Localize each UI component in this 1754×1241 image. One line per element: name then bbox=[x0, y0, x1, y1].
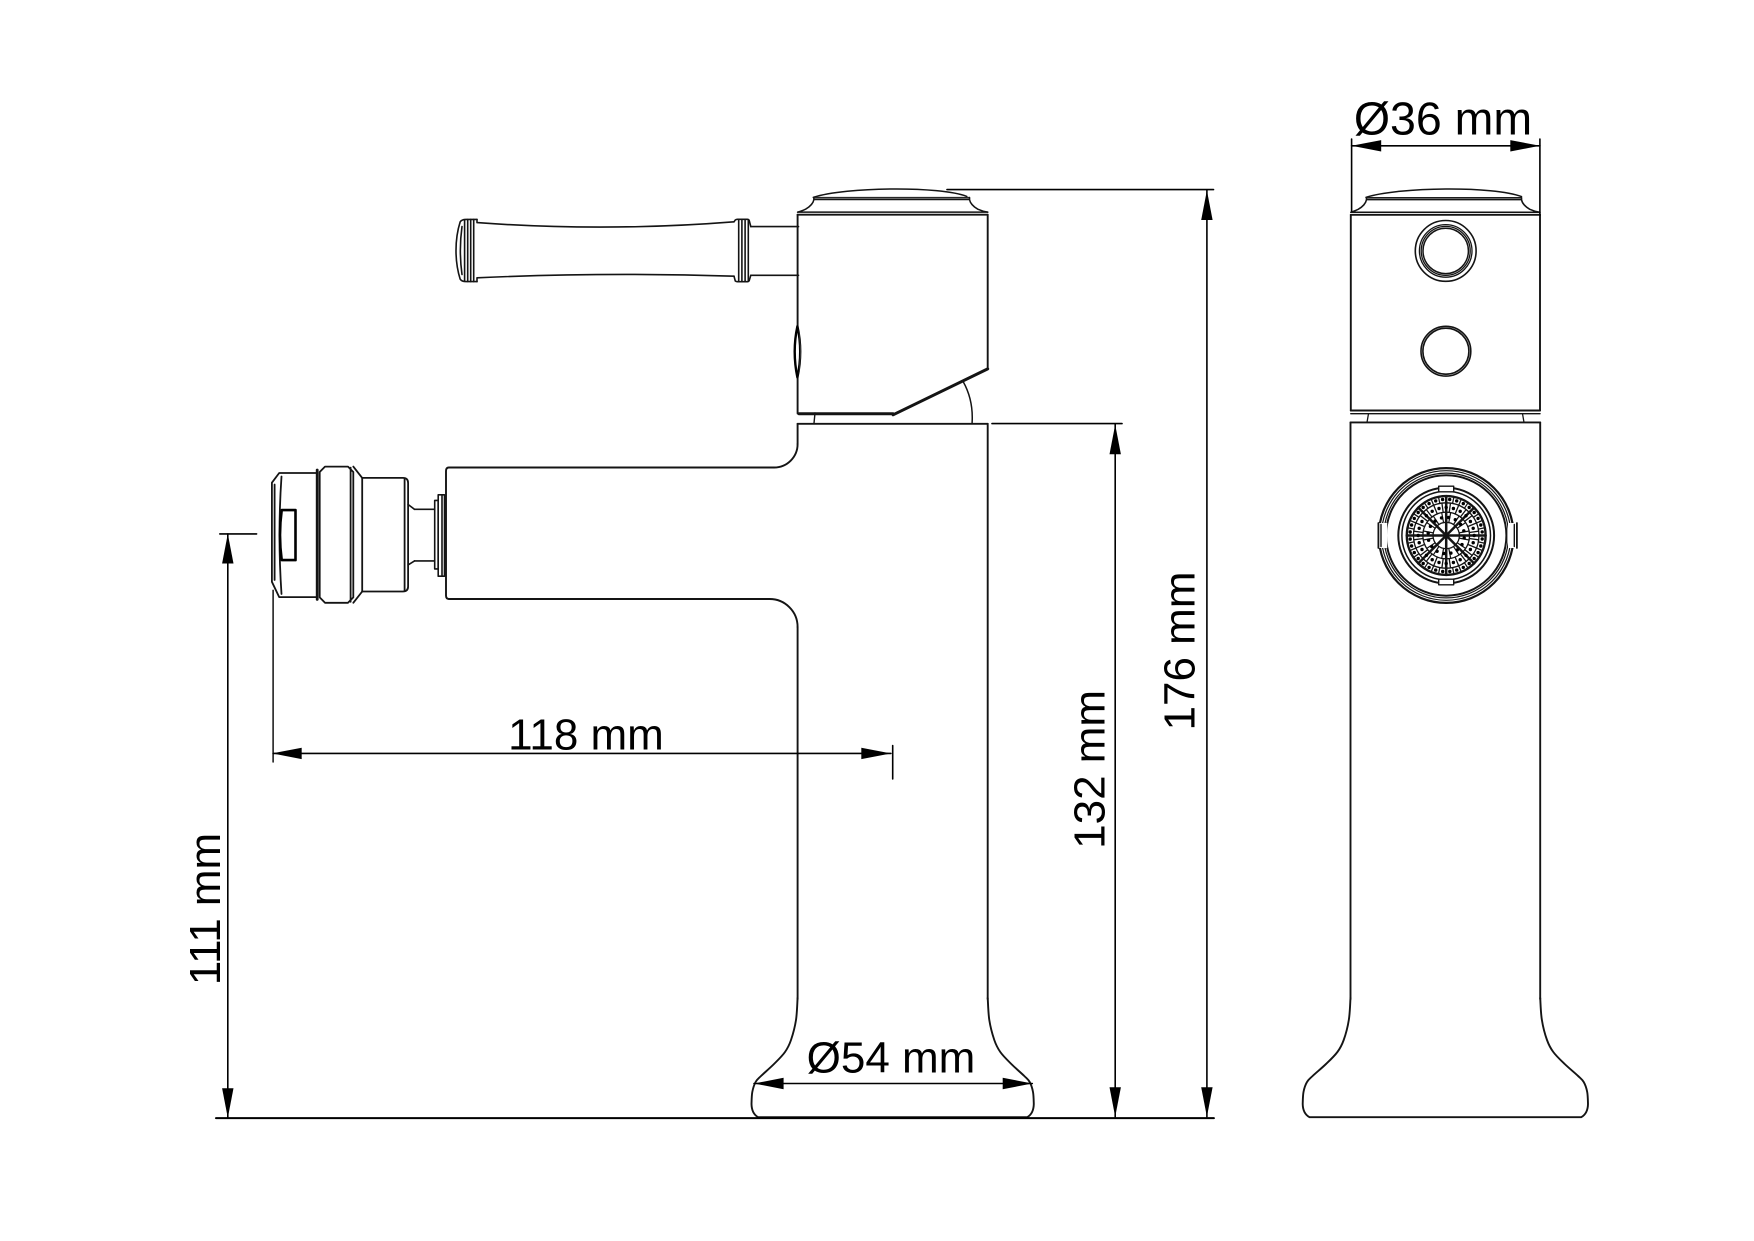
svg-text:176 mm: 176 mm bbox=[1156, 572, 1205, 731]
svg-text:118 mm: 118 mm bbox=[508, 710, 664, 759]
svg-text:Ø54 mm: Ø54 mm bbox=[807, 1033, 976, 1082]
svg-text:132 mm: 132 mm bbox=[1065, 690, 1114, 849]
svg-text:111 mm: 111 mm bbox=[181, 833, 230, 985]
svg-text:Ø36 mm: Ø36 mm bbox=[1354, 92, 1532, 144]
